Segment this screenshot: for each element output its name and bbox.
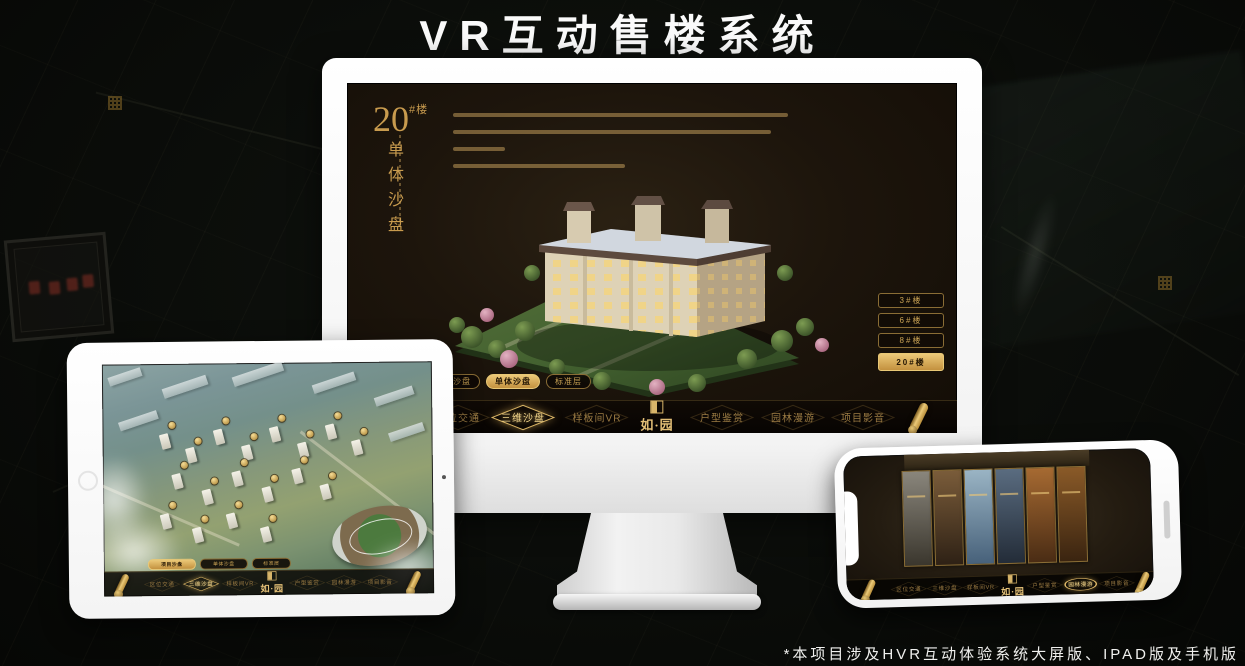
nav-garden-roam[interactable]: 园林漫游 — [332, 578, 357, 586]
footnote-text: *本项目涉及HVR互动体验系统大屏版、IPAD版及手机版 — [784, 643, 1239, 664]
background-plaque — [4, 232, 115, 343]
nav-project-media[interactable]: 项目影音 — [368, 578, 393, 586]
nav-showroom-vr[interactable]: 样板间VR — [967, 582, 995, 591]
nav-3d-sandbox[interactable]: 三维沙盘 — [932, 583, 957, 592]
estate-building — [159, 433, 171, 450]
estate-building — [351, 439, 363, 456]
building-badge[interactable] — [211, 477, 218, 484]
estate-building — [325, 423, 337, 440]
nav-3d-sandbox[interactable]: 三维沙盘 — [501, 410, 545, 425]
estate-building — [260, 526, 272, 543]
city-block — [374, 385, 415, 406]
building-badge[interactable] — [269, 515, 276, 522]
building-badge[interactable] — [201, 516, 208, 523]
nav-3d-sandbox[interactable]: 三维沙盘 — [189, 579, 214, 587]
tablet-screen: 项目沙盘 单体沙盘 标准层 区位交通 三维沙盘 样板间VR 如·园 户型鉴赏 园… — [102, 361, 434, 596]
background-map-marker — [108, 96, 122, 110]
gallery-panel-autumn[interactable] — [1025, 467, 1057, 564]
estate-building — [213, 429, 225, 446]
brand-logo: 如·园 — [260, 571, 284, 594]
floor-button-group: 3#楼 6#楼 8#楼 20#楼 — [878, 293, 944, 376]
seal-icon — [651, 401, 664, 414]
estate-building — [171, 473, 183, 490]
phone-notch — [844, 491, 859, 565]
floor-button-6[interactable]: 6#楼 — [878, 313, 944, 328]
building-badge[interactable] — [329, 472, 336, 479]
phone-screen: 区位交通 三维沙盘 样板间VR 如·园 户型鉴赏 园林漫游 项目影音 — [843, 448, 1154, 601]
tablet-camera-dot — [442, 475, 446, 479]
scroll-icon[interactable] — [861, 578, 876, 600]
gallery-panel-interior[interactable] — [901, 470, 933, 567]
nav-showroom-vr[interactable]: 样板间VR — [226, 579, 254, 587]
nav-showroom-vr[interactable]: 样板间VR — [573, 410, 622, 425]
tablet-tab-standard-floor[interactable]: 标准层 — [252, 558, 291, 569]
scroll-icon[interactable] — [406, 570, 422, 593]
city-block — [118, 410, 159, 431]
floor-button-20[interactable]: 20#楼 — [878, 353, 944, 371]
city-block — [107, 367, 142, 386]
estate-building — [185, 447, 197, 464]
building-badge[interactable] — [271, 475, 278, 482]
phone-device: 区位交通 三维沙盘 样板间VR 如·园 户型鉴赏 园林漫游 项目影音 — [834, 439, 1182, 609]
gallery-panel-lobby[interactable] — [932, 469, 964, 566]
brand-logo: 如·园 — [640, 401, 673, 434]
estate-building — [261, 486, 273, 503]
building-badge[interactable] — [181, 462, 188, 469]
city-block — [162, 375, 209, 399]
brand-logo: 如·园 — [1001, 574, 1025, 598]
tablet-tab-project-sandbox[interactable]: 项目沙盘 — [148, 559, 196, 571]
nav-location-traffic[interactable]: 区位交通 — [150, 580, 175, 588]
estate-building — [269, 426, 281, 443]
scroll-icon[interactable] — [1135, 571, 1150, 594]
tablet-home-ring — [78, 471, 98, 491]
building-badge[interactable] — [168, 422, 175, 429]
floor-button-3[interactable]: 3#楼 — [878, 293, 944, 308]
city-block — [388, 422, 425, 442]
tab-unit-sandbox[interactable]: 单体沙盘 — [486, 374, 540, 389]
phone-navbar: 区位交通 三维沙盘 样板间VR 如·园 户型鉴赏 园林漫游 项目影音 — [846, 571, 1153, 601]
building-badge[interactable] — [241, 459, 248, 466]
building-badge[interactable] — [222, 417, 229, 424]
city-block — [232, 361, 284, 387]
building-badge[interactable] — [334, 412, 341, 419]
scroll-icon[interactable] — [908, 402, 929, 433]
nav-location-traffic[interactable]: 区位交通 — [896, 584, 921, 593]
building-badge[interactable] — [235, 501, 242, 508]
tablet-navbar: 区位交通 三维沙盘 样板间VR 如·园 户型鉴赏 园林漫游 项目影音 — [104, 568, 434, 596]
floor-button-8[interactable]: 8#楼 — [878, 333, 944, 348]
estate-building — [201, 489, 213, 506]
nav-project-media[interactable]: 项目影音 — [841, 410, 885, 425]
building-3d-model[interactable] — [397, 145, 857, 405]
unit-number-suffix: #楼 — [409, 104, 428, 116]
background-map-marker — [1158, 276, 1172, 290]
building-badge[interactable] — [251, 433, 258, 440]
seal-icon — [1008, 574, 1017, 583]
nav-project-media[interactable]: 项目影音 — [1104, 579, 1129, 588]
building-badge[interactable] — [301, 457, 308, 464]
phone-side-button — [1163, 500, 1170, 538]
seal-icon — [267, 571, 276, 580]
background-aerial-photo — [943, 50, 1245, 349]
nav-garden-roam[interactable]: 园林漫游 — [771, 410, 815, 425]
estate-building — [231, 470, 243, 487]
nav-floorplan[interactable]: 户型鉴赏 — [1032, 581, 1057, 590]
estate-building — [319, 483, 331, 500]
tablet-device: 项目沙盘 单体沙盘 标准层 区位交通 三维沙盘 样板间VR 如·园 户型鉴赏 园… — [67, 339, 456, 619]
tablet-tab-row: 项目沙盘 单体沙盘 标准层 — [148, 558, 291, 570]
unit-number: 20 — [373, 99, 409, 139]
building-badge[interactable] — [306, 430, 313, 437]
building-badge[interactable] — [360, 428, 367, 435]
mist — [102, 454, 150, 545]
tab-standard-floor[interactable]: 标准层 — [546, 374, 591, 389]
nav-floorplan[interactable]: 户型鉴赏 — [295, 578, 320, 586]
monitor-base — [553, 594, 761, 610]
nav-garden-roam[interactable]: 园林漫游 — [1068, 580, 1093, 589]
estate-building — [291, 468, 303, 485]
tablet-navbar-wrap: 区位交通 三维沙盘 样板间VR 如·园 户型鉴赏 园林漫游 项目影音 — [104, 568, 434, 596]
page-title: VR互动售楼系统 — [0, 2, 1245, 63]
tablet-tab-unit-sandbox[interactable]: 单体沙盘 — [200, 558, 248, 570]
building-badge[interactable] — [169, 502, 176, 509]
gallery-panel-shelf[interactable] — [1056, 466, 1088, 563]
estate-building — [226, 512, 238, 529]
gallery-panel-garden[interactable] — [963, 468, 995, 565]
nav-floorplan[interactable]: 户型鉴赏 — [700, 410, 744, 425]
building-badge[interactable] — [278, 415, 285, 422]
promo-poster: { "title": "VR互动售楼系统", "footnote": "*本项目… — [0, 0, 1245, 666]
city-block — [312, 371, 357, 394]
scroll-icon[interactable] — [114, 573, 130, 596]
building-badge[interactable] — [195, 438, 202, 445]
gallery-panel-building[interactable] — [994, 468, 1026, 565]
